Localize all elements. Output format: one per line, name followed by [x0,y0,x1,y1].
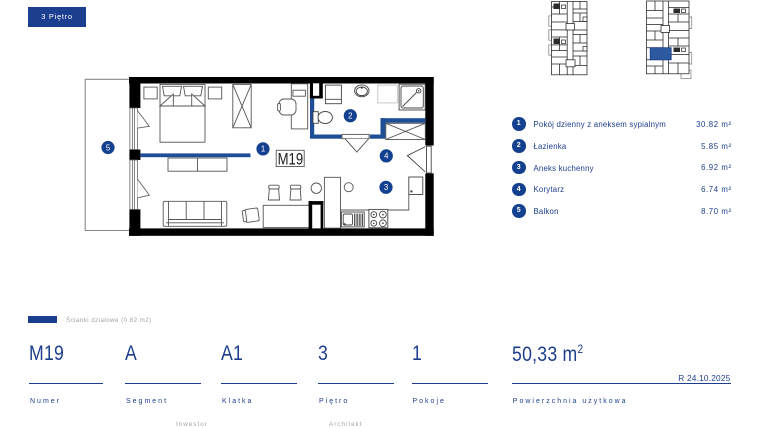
svg-text:4: 4 [384,152,389,161]
svg-text:3: 3 [384,183,388,192]
svg-text:5: 5 [106,143,111,152]
svg-text:M19: M19 [278,150,304,168]
svg-text:1: 1 [261,145,265,154]
svg-text:2: 2 [348,112,352,121]
